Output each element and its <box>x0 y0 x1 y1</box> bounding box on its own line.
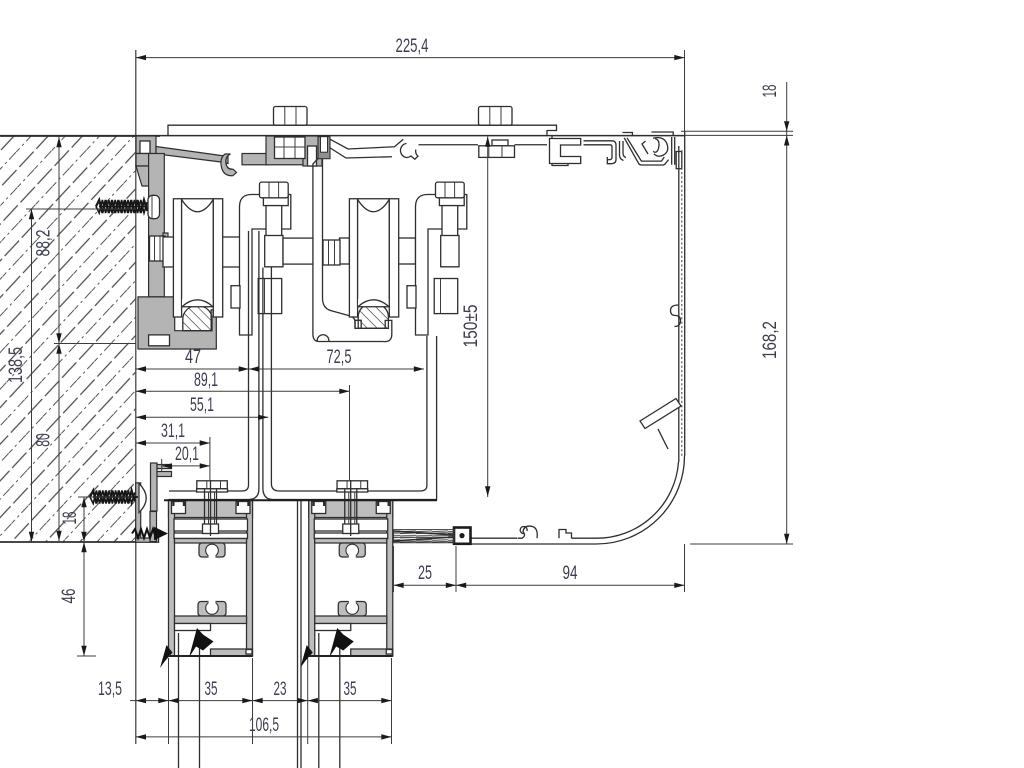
svg-text:88,2: 88,2 <box>34 230 55 257</box>
svg-text:138,5: 138,5 <box>6 347 27 383</box>
svg-text:18: 18 <box>760 85 781 98</box>
svg-text:47: 47 <box>185 347 201 368</box>
svg-text:94: 94 <box>563 563 578 584</box>
svg-text:106,5: 106,5 <box>249 715 279 736</box>
svg-text:25: 25 <box>418 563 432 584</box>
svg-text:225,4: 225,4 <box>396 36 429 57</box>
svg-text:31,1: 31,1 <box>161 421 185 442</box>
svg-text:35: 35 <box>344 679 357 700</box>
svg-text:55,1: 55,1 <box>190 395 214 416</box>
svg-text:18: 18 <box>60 512 81 525</box>
svg-text:89,1: 89,1 <box>194 370 218 391</box>
svg-text:72,5: 72,5 <box>327 347 352 368</box>
svg-text:168,2: 168,2 <box>760 321 781 359</box>
svg-text:35: 35 <box>205 679 218 700</box>
svg-text:80: 80 <box>34 433 55 447</box>
svg-text:20,1: 20,1 <box>175 444 199 465</box>
svg-text:46: 46 <box>59 589 80 604</box>
svg-text:150±5: 150±5 <box>461 305 482 348</box>
svg-text:13,5: 13,5 <box>98 679 122 700</box>
svg-text:23: 23 <box>274 679 287 700</box>
